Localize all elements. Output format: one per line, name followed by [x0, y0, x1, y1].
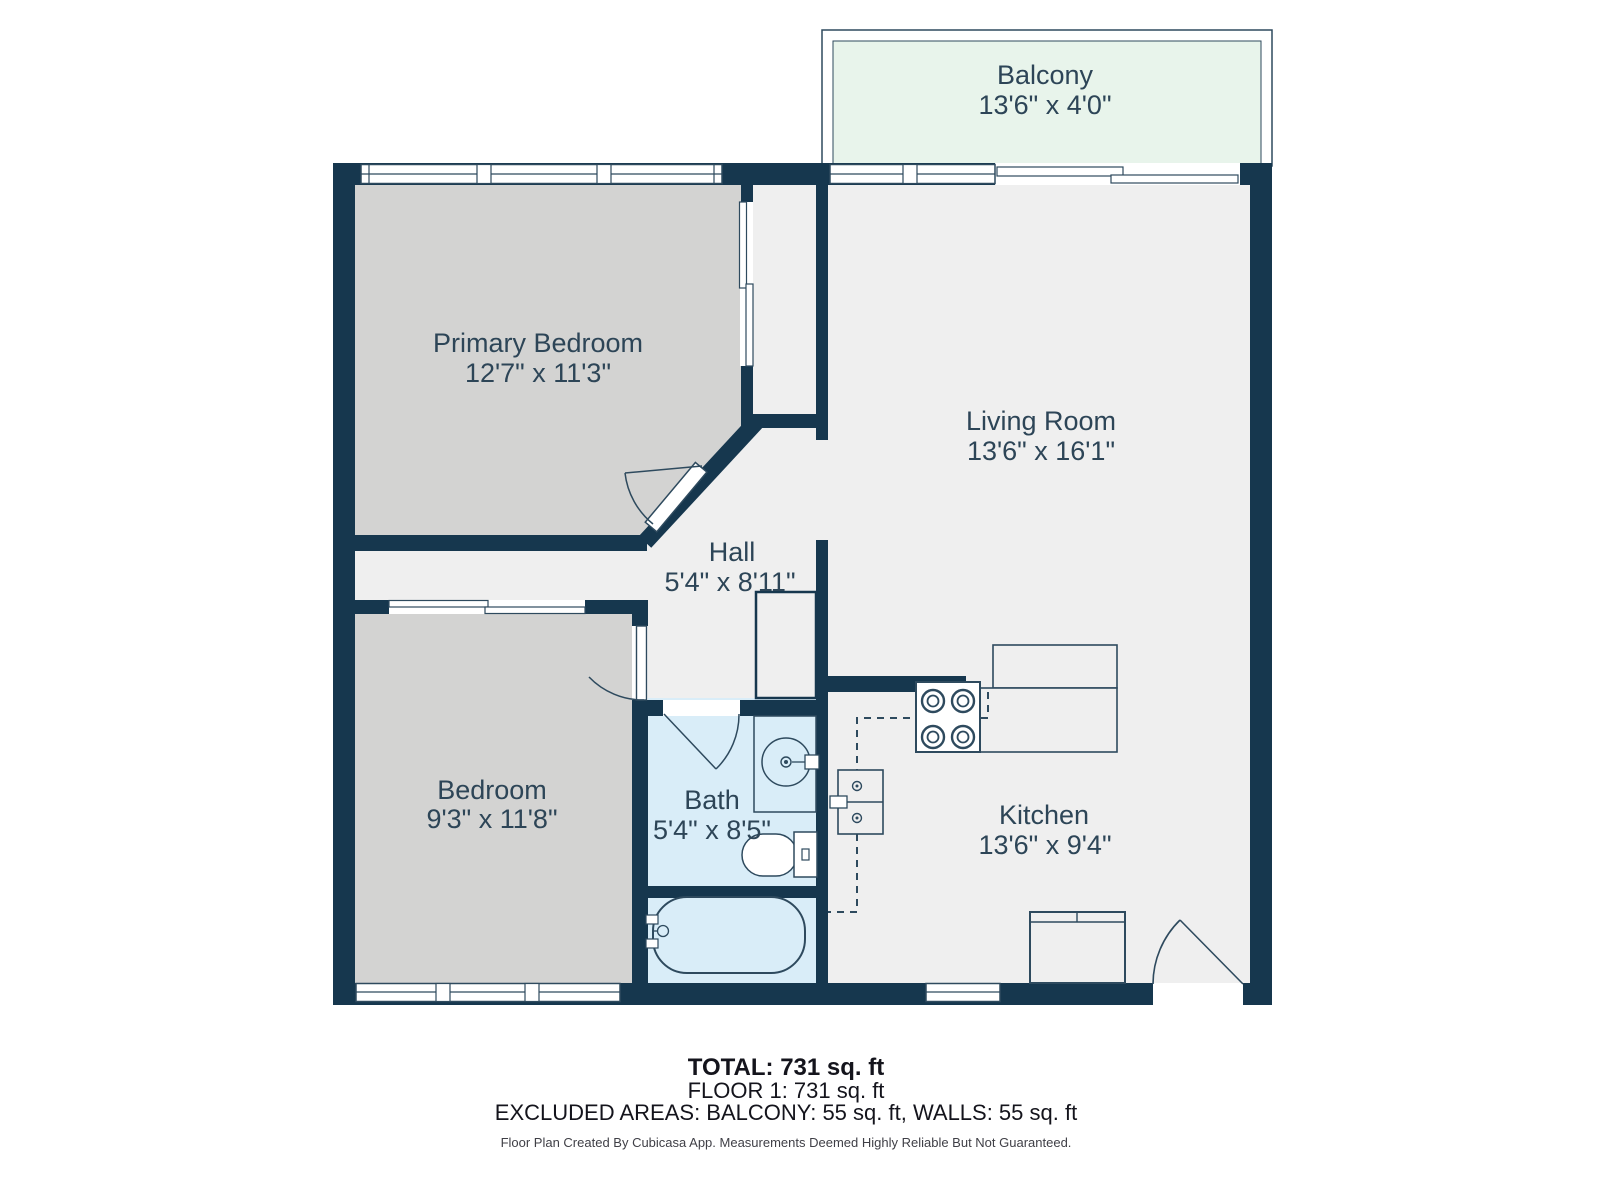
kitchen-counter-lower: [980, 688, 1117, 752]
slider-panel: [389, 601, 488, 608]
hall-closet: [756, 592, 816, 698]
primary-bedroom-label: Primary Bedroom: [433, 328, 643, 358]
floor-plan-canvas: Balcony 13'6" x 4'0" Primary Bedroom 12'…: [0, 0, 1600, 1200]
floor-plan-page: Balcony 13'6" x 4'0" Primary Bedroom 12'…: [0, 0, 1600, 1200]
bath-label: Bath: [684, 785, 740, 815]
living-room-label: Living Room: [966, 406, 1116, 436]
tub-body: [653, 897, 805, 973]
bath-dims: 5'4" x 8'5": [653, 815, 771, 845]
door-leaf: [637, 626, 647, 700]
wall-left: [333, 163, 355, 1005]
window-mullion: [525, 984, 539, 1002]
kitchen-counter-upper: [993, 645, 1117, 688]
footer-total: TOTAL: 731 sq. ft: [688, 1054, 884, 1081]
bathtub: [646, 897, 805, 973]
slider-panel: [740, 202, 747, 288]
wall-closet-stub-top: [741, 185, 753, 202]
window-mullion: [597, 165, 611, 184]
sink-faucet: [805, 755, 819, 769]
dishwasher: [1030, 912, 1125, 983]
wall-closet-bottom: [741, 414, 828, 428]
bedroom-label: Bedroom: [437, 775, 547, 805]
kitchen-label: Kitchen: [999, 800, 1089, 830]
hall-label: Hall: [709, 537, 756, 567]
primary-bedroom-dims: 12'7" x 11'3": [465, 358, 611, 388]
toilet-button: [802, 849, 809, 860]
opening-bath-door: [663, 700, 740, 716]
bedroom-closet-sliding-door: [389, 600, 585, 614]
window-primary-bedroom-top: [361, 165, 722, 184]
footer-disclaimer: Floor Plan Created By Cubicasa App. Meas…: [501, 1135, 1072, 1150]
window-bedroom-bottom: [356, 984, 620, 1002]
wall-right: [1250, 163, 1272, 1005]
stove: [916, 682, 980, 752]
balcony-label: Balcony: [997, 60, 1094, 90]
wall-bedroom-hall-stub: [632, 600, 648, 626]
sink-drain-dot: [784, 760, 788, 764]
primary-closet-sliding-door: [740, 202, 754, 366]
kitchen-sink: [830, 770, 883, 834]
tub-tap: [646, 915, 658, 924]
sink-drain-dot: [856, 785, 859, 788]
wall-bedroom-top-left: [355, 600, 389, 614]
opening-hall-living: [816, 440, 828, 540]
kitchen-dims: 13'6" x 9'4": [978, 830, 1111, 860]
window-mullion: [436, 984, 450, 1002]
tub-tap: [646, 939, 658, 948]
window-kitchen-bottom: [926, 984, 1000, 1002]
bedroom-dims: 9'3" x 11'8": [426, 804, 557, 834]
footer-excluded-areas: EXCLUDED AREAS: BALCONY: 55 sq. ft, WALL…: [495, 1100, 1077, 1125]
sink-faucet: [830, 796, 847, 808]
slider-panel: [746, 284, 753, 366]
living-room-dims: 13'6" x 16'1": [967, 436, 1115, 466]
balcony-dims: 13'6" x 4'0": [978, 90, 1111, 120]
wall-primary-bedroom-bottom: [355, 535, 647, 551]
window-mullion: [477, 165, 491, 184]
window-mullion: [903, 165, 917, 184]
window-living-room-top: [830, 165, 995, 184]
sink-drain-dot: [856, 817, 859, 820]
footer: TOTAL: 731 sq. ft FLOOR 1: 731 sq. ft EX…: [495, 1054, 1077, 1150]
slider-panel: [485, 607, 585, 614]
wall-living-divider-upper: [816, 185, 828, 440]
opening-entry-door: [1153, 983, 1243, 1005]
hall-dims: 5'4" x 8'11": [664, 567, 795, 597]
